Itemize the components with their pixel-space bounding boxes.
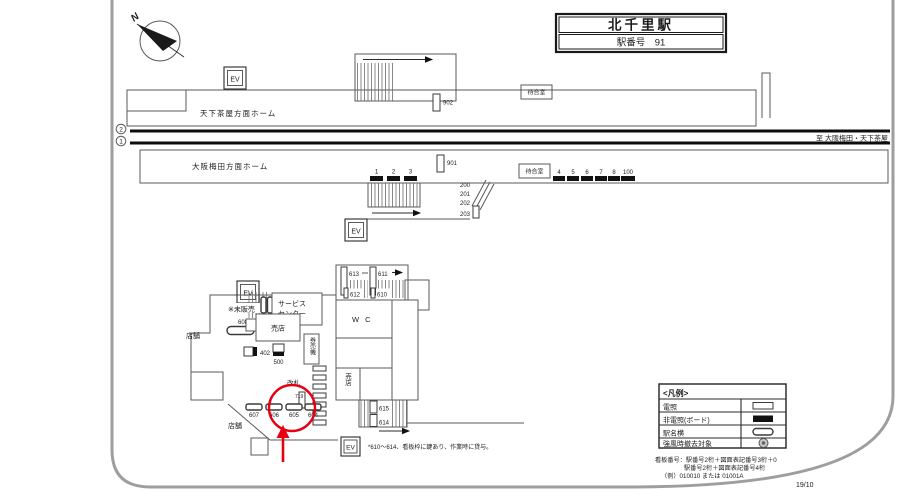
title-box: 北千里駅 駅番号 91 — [556, 14, 726, 52]
compass-icon: N — [129, 11, 184, 61]
signboard-902-label: 902 — [443, 101, 454, 107]
signboard-613-label: 613 — [349, 272, 360, 278]
signboard-612-label: 612 — [350, 293, 361, 299]
track-lines: 2 1 至 大阪梅田・天下茶屋 — [116, 124, 890, 146]
track-1-number: 1 — [116, 136, 126, 146]
store-upper-label: 店舗 — [186, 331, 200, 340]
signboard-500: 500 — [273, 344, 284, 366]
upper-platform: 天下茶屋方面ホーム EV 902 待合室 — [127, 54, 770, 126]
legend-windremoval-icon — [759, 439, 768, 448]
direction-label: 至 大阪梅田・天下茶屋 — [816, 134, 888, 143]
legend-illuminated-icon — [753, 403, 773, 410]
signboard-200-label: 200 — [460, 183, 471, 189]
station-name: 北千里駅 — [608, 17, 674, 33]
svg-text:901: 901 — [447, 161, 458, 167]
legend-title: <凡例> — [663, 388, 689, 398]
legend-board-icon — [753, 416, 773, 423]
svg-text:2: 2 — [119, 126, 123, 133]
signboard-607 — [246, 404, 262, 410]
svg-text:100: 100 — [623, 170, 634, 176]
signboard-614 — [370, 415, 377, 427]
waiting-room-upper-label: 待合室 — [527, 89, 545, 97]
signboard-615-label: 615 — [379, 407, 390, 413]
track-2-number: 2 — [116, 124, 126, 134]
station-number: 駅番号 91 — [617, 37, 666, 49]
svg-text:500: 500 — [273, 360, 284, 366]
central-block: W C 売店 — [336, 300, 418, 400]
elevator-upper-label: EV — [230, 77, 240, 84]
platform-end-structure — [762, 73, 770, 118]
signboard-201-label: 201 — [460, 192, 471, 198]
legend-stationname-icon — [753, 429, 773, 436]
kiosk-room: 売店 — [246, 314, 300, 341]
signboard-604 — [305, 404, 321, 410]
lower-platform: 大阪梅田方面ホーム 1 2 3 901 200 201 202 — [140, 150, 888, 241]
station-name-board-a — [261, 297, 266, 313]
svg-text:402: 402 — [260, 351, 271, 357]
elevator-lower-platform: EV — [345, 219, 367, 241]
highlight — [269, 385, 315, 462]
concourse: 613 611 612 610 EV サービス センター — [186, 265, 524, 456]
store-room-left — [191, 372, 223, 400]
upper-platform-label: 天下茶屋方面ホーム — [200, 108, 276, 118]
legend-row3-label: 駅名横 — [663, 429, 684, 438]
signboard-610-label: 610 — [377, 293, 388, 299]
signboard-612 — [344, 288, 348, 298]
gate-small-note: 719 — [295, 394, 304, 400]
ticket-machine-room: 券売機 — [304, 334, 319, 364]
kiosk-label: 売店 — [271, 324, 285, 333]
stairs-lower-icon — [364, 183, 470, 219]
svg-text:605: 605 — [289, 413, 300, 419]
store-room-small — [251, 438, 268, 455]
sheet-code: 19/10 — [796, 482, 814, 489]
lower-platform-label: 大阪梅田方面ホーム — [192, 161, 268, 171]
gate-signboards: 607 606 605 604 — [246, 404, 321, 419]
legend: <凡例> 電照 非電照(ボード) 駅名横 強風時撤去対象 — [659, 384, 786, 448]
signboard-402: 402 — [244, 347, 271, 357]
signboard-203 — [473, 206, 479, 218]
legend-row4-label: 強風時撤去対象 — [663, 439, 712, 448]
signboard-605 — [286, 404, 302, 410]
legend-row1-label: 電照 — [663, 404, 677, 412]
wc-label: W C — [352, 315, 373, 324]
numbering-note-line2: 駅番号2桁＋図面表記番号4桁 — [684, 464, 765, 472]
store-lower-label: 店舗 — [228, 421, 242, 430]
station-signage-diagram: N 北千里駅 駅番号 91 天下茶屋方面ホーム EV 902 待合室 — [0, 0, 919, 491]
svg-text:EV: EV — [351, 229, 361, 236]
signboard-611-label: 611 — [378, 272, 388, 278]
north-label: N — [129, 11, 142, 25]
ticket-machine-label: 券売機 — [309, 336, 316, 356]
signboard-615 — [370, 401, 377, 413]
stairs-concourse-south-icon: 615 614 — [359, 400, 409, 431]
signboard-614-label: 614 — [379, 421, 390, 427]
lock-note: *610～614、看板枠に鍵あり、作業時に貸与。 — [368, 443, 492, 451]
unsold-label: ※未販売 — [228, 305, 255, 314]
svg-text:待合室: 待合室 — [525, 168, 543, 176]
svg-text:607: 607 — [249, 413, 260, 419]
svg-text:EV: EV — [346, 445, 355, 452]
footer-notes: 看板番号：駅番号2桁＋図面表記番号3桁＋0 駅番号2桁＋図面表記番号4桁 （例）… — [655, 456, 814, 489]
elevator-upper: EV — [224, 67, 246, 89]
svg-text:1: 1 — [119, 138, 123, 145]
signboard-610 — [371, 288, 375, 298]
numbering-note-line1: 看板番号：駅番号2桁＋図面表記番号3桁＋0 — [655, 456, 777, 464]
signboard-202-label: 202 — [460, 201, 471, 207]
diagram-canvas: N 北千里駅 駅番号 91 天下茶屋方面ホーム EV 902 待合室 — [0, 0, 919, 491]
elevator-concourse-south: EV — [341, 437, 360, 456]
service-center-label-1: サービス — [278, 299, 306, 308]
numbering-note-line3: （例）010010 または 01001A — [661, 472, 744, 480]
signboard-203-label: 203 — [460, 212, 471, 218]
legend-row2-label: 非電照(ボード) — [663, 416, 710, 425]
ramp-boards: 200 201 202 203 — [460, 180, 494, 218]
